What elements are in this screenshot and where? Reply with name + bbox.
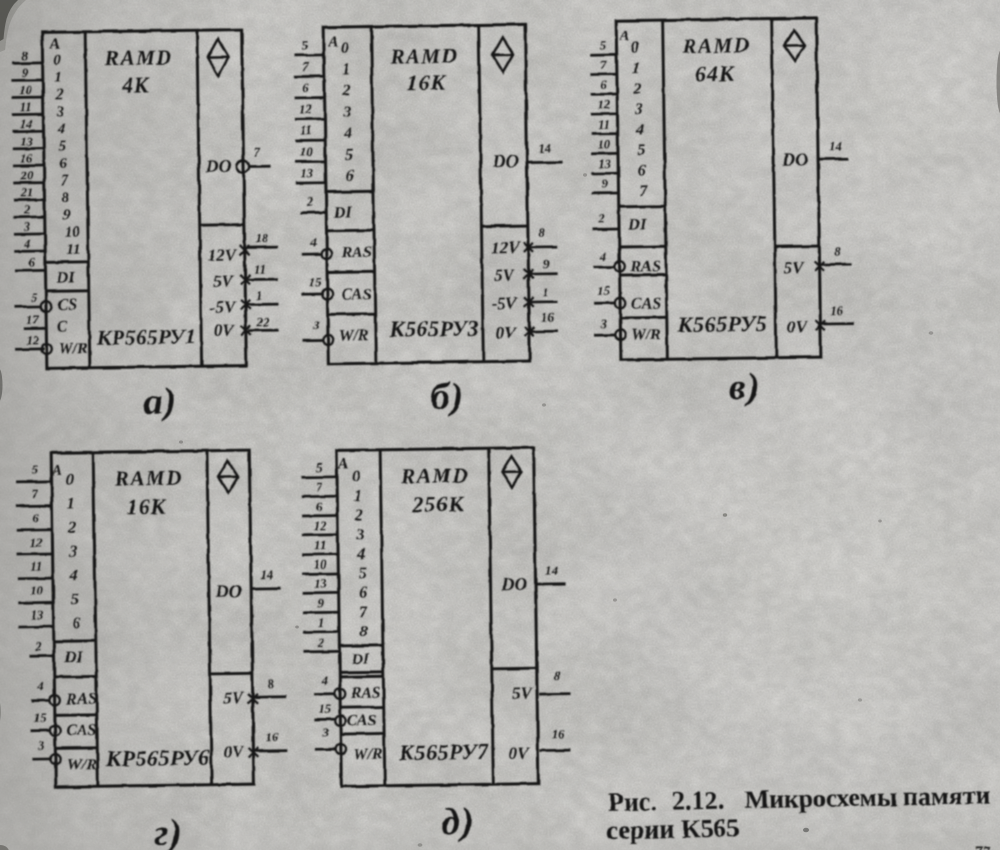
svg-text:9: 9 [318, 596, 325, 610]
svg-text:5: 5 [58, 138, 66, 154]
svg-text:г): г) [154, 812, 183, 850]
svg-text:8: 8 [267, 677, 274, 691]
svg-text:4: 4 [356, 546, 365, 563]
svg-text:К565: К565 [681, 813, 739, 843]
svg-text:RAMD: RAMD [114, 466, 183, 491]
svg-text:77: 77 [976, 844, 992, 850]
svg-text:КР565РУ1: КР565РУ1 [96, 324, 196, 349]
svg-text:22: 22 [256, 315, 270, 329]
svg-text:DO: DO [214, 581, 241, 601]
svg-text:DO: DO [500, 574, 527, 594]
svg-text:10: 10 [30, 584, 43, 598]
svg-text:1: 1 [54, 69, 62, 85]
svg-text:18: 18 [255, 231, 268, 245]
svg-text:а): а) [143, 380, 177, 422]
svg-text:6: 6 [600, 78, 607, 92]
svg-text:A: A [337, 456, 348, 472]
svg-text:2: 2 [597, 212, 604, 226]
svg-text:16: 16 [830, 304, 843, 318]
svg-text:W/R: W/R [339, 327, 369, 344]
svg-text:Микросхемы: Микросхемы [745, 782, 898, 814]
svg-text:К565РУ3: К565РУ3 [388, 315, 479, 341]
svg-text:15: 15 [309, 275, 322, 289]
svg-text:9: 9 [602, 177, 609, 191]
svg-text:RAS: RAS [341, 244, 373, 261]
svg-text:5V: 5V [213, 272, 235, 291]
svg-text:5: 5 [316, 461, 322, 475]
svg-text:8: 8 [22, 49, 29, 63]
svg-text:1: 1 [67, 495, 75, 512]
svg-text:3: 3 [55, 104, 64, 120]
svg-text:3: 3 [322, 726, 329, 740]
svg-text:6: 6 [302, 81, 309, 95]
svg-text:д): д) [441, 801, 475, 843]
svg-text:2: 2 [23, 203, 30, 217]
svg-text:16: 16 [552, 727, 565, 741]
svg-text:12: 12 [597, 98, 610, 112]
svg-text:5: 5 [345, 146, 353, 163]
svg-text:RAS: RAS [65, 691, 97, 708]
svg-text:RAMD: RAMD [681, 33, 750, 58]
svg-text:6: 6 [638, 162, 646, 179]
svg-text:К565РУ7: К565РУ7 [398, 739, 489, 765]
svg-text:13: 13 [300, 166, 313, 180]
svg-text:4: 4 [343, 125, 352, 142]
svg-text:DI: DI [64, 649, 84, 666]
svg-text:20: 20 [19, 169, 33, 183]
svg-text:4: 4 [69, 567, 78, 584]
svg-text:2: 2 [67, 519, 76, 536]
svg-text:RAMD: RAMD [400, 463, 469, 488]
svg-text:-5V: -5V [210, 298, 237, 317]
svg-text:0V: 0V [508, 744, 530, 763]
svg-text:5: 5 [359, 565, 367, 582]
svg-text:C: C [56, 318, 67, 335]
svg-text:3: 3 [312, 318, 319, 332]
svg-text:A: A [51, 463, 62, 479]
svg-text:5V: 5V [223, 688, 245, 707]
svg-text:8: 8 [554, 669, 561, 683]
svg-text:0V: 0V [214, 321, 236, 340]
svg-text:W/R: W/R [58, 340, 88, 357]
svg-text:6: 6 [59, 156, 67, 172]
svg-text:Рис.: Рис. [608, 787, 657, 817]
svg-text:К565РУ5: К565РУ5 [676, 311, 767, 337]
svg-text:12: 12 [26, 333, 39, 347]
svg-text:0: 0 [352, 468, 360, 485]
svg-text:2: 2 [317, 636, 324, 650]
svg-text:14: 14 [539, 141, 552, 155]
svg-text:DO: DO [781, 149, 808, 169]
svg-text:4: 4 [599, 249, 606, 263]
svg-text:10: 10 [19, 83, 32, 97]
svg-text:10: 10 [300, 145, 313, 159]
svg-text:W/R: W/R [353, 746, 383, 763]
svg-text:14: 14 [829, 139, 842, 153]
svg-text:0V: 0V [496, 323, 518, 342]
svg-text:9: 9 [63, 207, 71, 223]
svg-text:7: 7 [32, 487, 39, 501]
svg-text:8: 8 [360, 623, 368, 640]
svg-text:8: 8 [62, 190, 70, 206]
svg-text:10: 10 [598, 137, 611, 151]
svg-text:2: 2 [34, 640, 41, 654]
svg-text:7: 7 [639, 183, 648, 200]
svg-text:7: 7 [359, 604, 368, 621]
svg-text:5: 5 [302, 38, 308, 52]
svg-text:12: 12 [30, 535, 43, 549]
svg-text:6: 6 [316, 499, 323, 513]
svg-text:9: 9 [543, 257, 550, 271]
svg-text:0: 0 [65, 471, 73, 488]
svg-text:1: 1 [353, 488, 361, 505]
svg-text:4: 4 [635, 121, 644, 138]
svg-text:КР565РУ6: КР565РУ6 [105, 745, 210, 771]
svg-text:3: 3 [600, 317, 607, 331]
svg-text:12V: 12V [491, 238, 521, 257]
svg-text:6: 6 [29, 256, 36, 270]
svg-text:13: 13 [598, 157, 611, 171]
svg-text:5: 5 [31, 291, 37, 305]
svg-text:0: 0 [631, 39, 639, 56]
svg-text:серии: серии [606, 815, 674, 845]
svg-text:DI: DI [627, 216, 647, 233]
svg-text:11: 11 [254, 262, 266, 276]
svg-text:13: 13 [20, 134, 33, 148]
svg-text:DI: DI [351, 652, 370, 668]
svg-text:RAS: RAS [629, 258, 661, 275]
svg-text:11: 11 [314, 538, 326, 552]
svg-text:памяти: памяти [903, 781, 991, 812]
svg-text:0V: 0V [787, 317, 809, 336]
svg-text:A: A [619, 28, 630, 44]
svg-text:256К: 256К [411, 491, 464, 517]
svg-text:б): б) [430, 375, 464, 417]
svg-text:5: 5 [637, 142, 645, 159]
svg-text:1: 1 [257, 289, 263, 303]
svg-text:1: 1 [318, 616, 324, 630]
svg-text:5V: 5V [494, 266, 516, 285]
svg-text:6: 6 [72, 615, 80, 632]
svg-text:1: 1 [542, 285, 548, 299]
svg-text:-5V: -5V [491, 294, 518, 313]
svg-text:A: A [49, 36, 60, 52]
svg-text:8: 8 [834, 245, 841, 259]
svg-text:CS: CS [58, 296, 78, 313]
svg-text:7: 7 [600, 58, 607, 72]
svg-text:2: 2 [54, 87, 63, 103]
svg-text:4: 4 [309, 235, 316, 249]
svg-text:21: 21 [20, 186, 34, 200]
svg-text:6: 6 [346, 168, 354, 185]
svg-text:DO: DO [491, 151, 518, 171]
svg-text:4: 4 [56, 121, 65, 137]
svg-text:15: 15 [318, 702, 331, 716]
svg-text:1: 1 [632, 60, 640, 77]
svg-text:14: 14 [20, 117, 33, 131]
svg-text:3: 3 [355, 526, 364, 543]
svg-text:16К: 16К [126, 494, 166, 520]
svg-text:12: 12 [313, 519, 326, 533]
svg-text:4: 4 [37, 679, 44, 693]
svg-text:64К: 64К [695, 61, 735, 87]
svg-text:0V: 0V [223, 742, 245, 761]
svg-text:1: 1 [342, 61, 350, 78]
svg-text:W/R: W/R [631, 326, 661, 343]
svg-text:11: 11 [20, 100, 32, 114]
svg-text:RAMD: RAMD [389, 44, 458, 69]
svg-text:W/R: W/R [67, 756, 97, 773]
svg-text:в): в) [729, 366, 761, 408]
svg-text:0: 0 [341, 39, 349, 56]
svg-text:7: 7 [254, 146, 261, 160]
svg-text:3: 3 [633, 101, 642, 118]
svg-text:16: 16 [541, 310, 554, 324]
svg-text:3: 3 [68, 543, 77, 560]
svg-text:7: 7 [60, 173, 68, 189]
svg-text:16: 16 [265, 730, 278, 744]
svg-text:0: 0 [53, 52, 61, 68]
svg-text:DI: DI [56, 269, 76, 286]
svg-text:5V: 5V [512, 683, 534, 702]
svg-text:15: 15 [597, 284, 610, 298]
svg-text:6: 6 [359, 585, 367, 602]
svg-text:3: 3 [23, 220, 30, 234]
svg-text:12V: 12V [207, 246, 237, 265]
svg-text:9: 9 [22, 66, 29, 80]
svg-text:2: 2 [306, 195, 313, 209]
svg-text:5: 5 [71, 591, 79, 608]
svg-text:3: 3 [37, 739, 44, 753]
svg-text:CAS: CAS [347, 712, 377, 729]
svg-text:4К: 4К [121, 72, 150, 97]
svg-text:4: 4 [321, 674, 328, 688]
svg-text:13: 13 [31, 608, 44, 622]
svg-text:17: 17 [26, 313, 39, 327]
svg-text:2: 2 [354, 507, 363, 524]
svg-text:A: A [328, 34, 339, 50]
svg-text:RAS: RAS [350, 685, 381, 702]
svg-text:4: 4 [23, 237, 30, 251]
svg-text:5V: 5V [784, 258, 806, 277]
svg-text:RAMD: RAMD [104, 45, 173, 70]
svg-text:2: 2 [341, 82, 350, 99]
svg-text:11: 11 [30, 560, 42, 574]
svg-text:3: 3 [342, 104, 351, 121]
svg-text:7: 7 [302, 60, 309, 74]
svg-text:DO: DO [204, 156, 231, 176]
svg-text:2: 2 [632, 80, 641, 97]
svg-text:16К: 16К [406, 70, 446, 96]
svg-text:11: 11 [598, 117, 610, 131]
svg-text:13: 13 [314, 577, 327, 591]
svg-text:CAS: CAS [341, 286, 372, 303]
svg-text:5: 5 [32, 463, 38, 477]
svg-text:10: 10 [65, 224, 81, 240]
svg-text:CAS: CAS [66, 722, 97, 739]
svg-text:11: 11 [66, 242, 80, 258]
svg-text:11: 11 [300, 123, 312, 137]
svg-text:CAS: CAS [631, 295, 662, 312]
svg-text:2.12.: 2.12. [672, 786, 725, 816]
svg-text:16: 16 [20, 151, 33, 165]
svg-text:14: 14 [545, 564, 558, 578]
svg-text:12: 12 [299, 102, 312, 116]
svg-text:DI: DI [333, 204, 353, 221]
svg-text:6: 6 [32, 511, 39, 525]
svg-text:8: 8 [538, 226, 545, 240]
svg-text:5: 5 [600, 38, 606, 52]
svg-text:15: 15 [34, 711, 47, 725]
svg-text:14: 14 [260, 568, 273, 582]
svg-text:10: 10 [314, 557, 327, 571]
svg-text:7: 7 [316, 480, 323, 494]
